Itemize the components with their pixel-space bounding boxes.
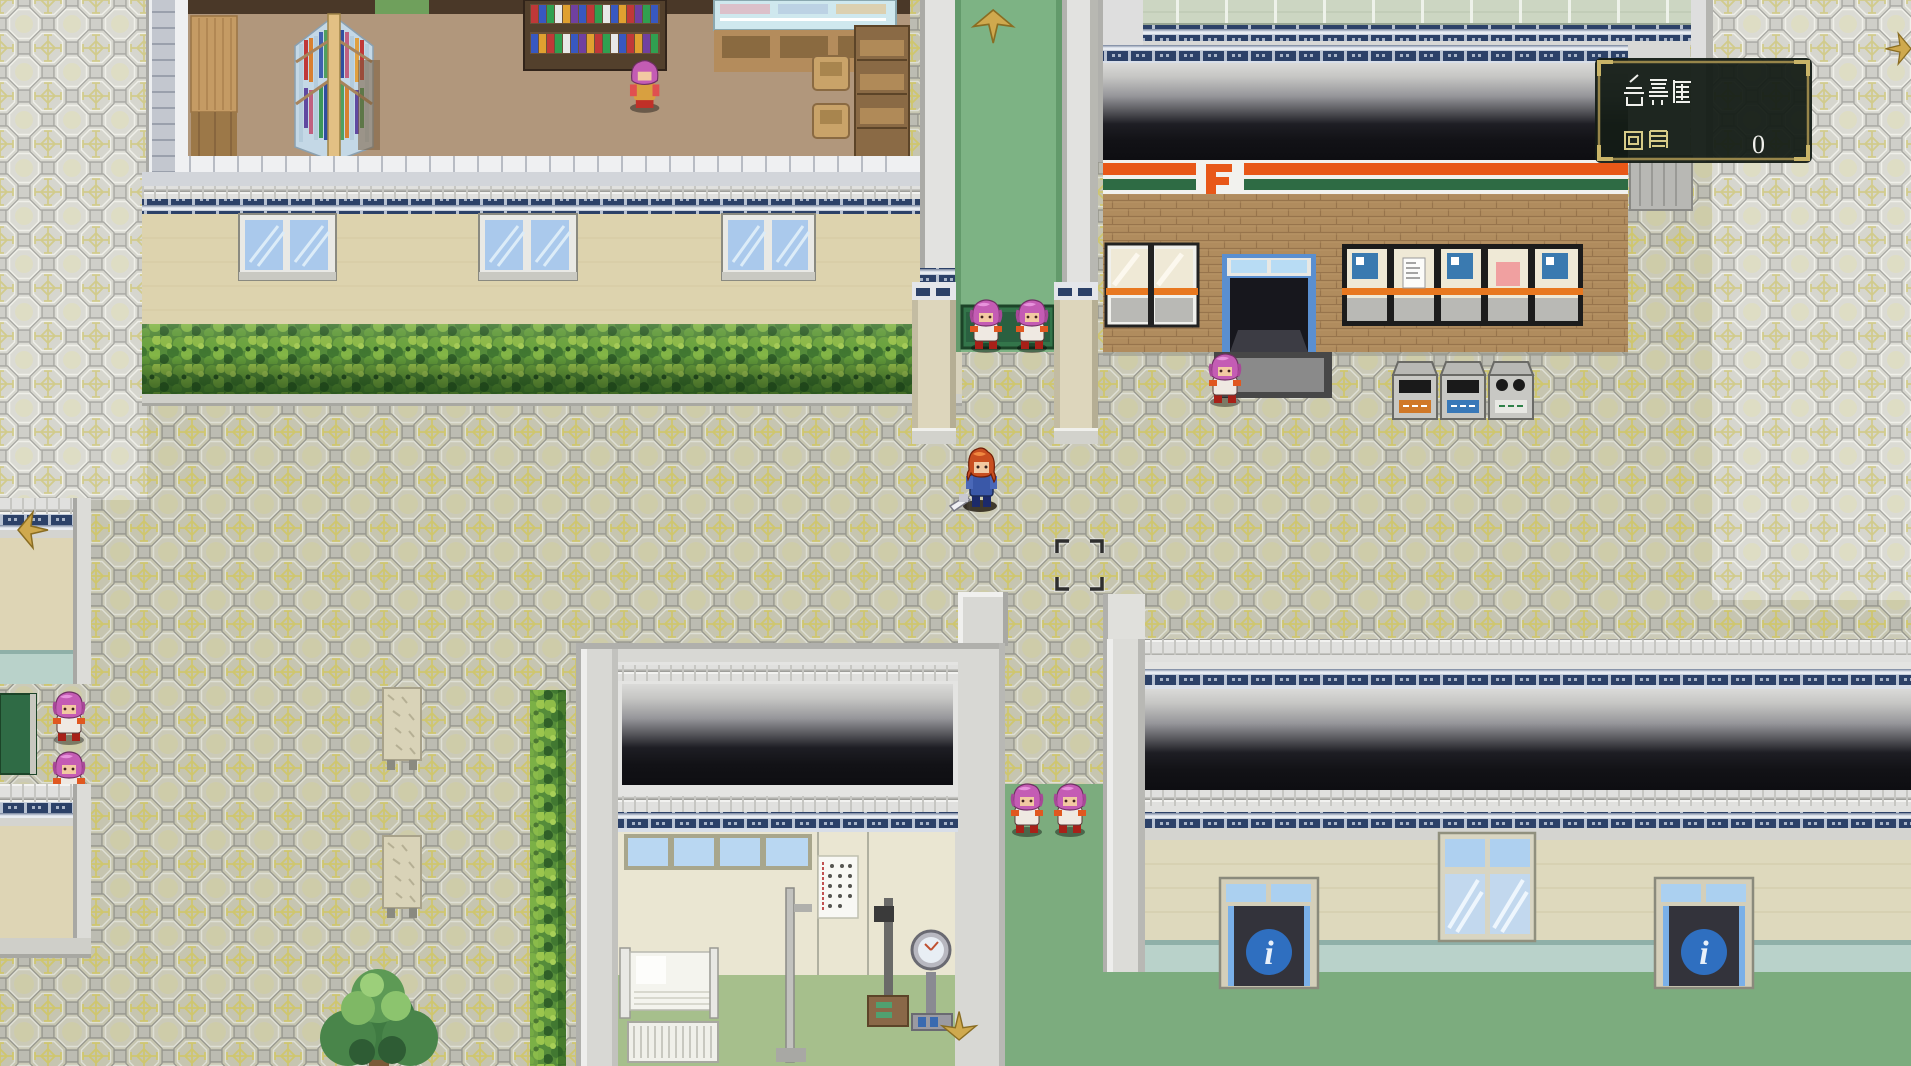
svg-text:0: 0 <box>1752 130 1765 159</box>
svg-text:i: i <box>1264 935 1274 972</box>
svg-text:i: i <box>1699 935 1709 972</box>
